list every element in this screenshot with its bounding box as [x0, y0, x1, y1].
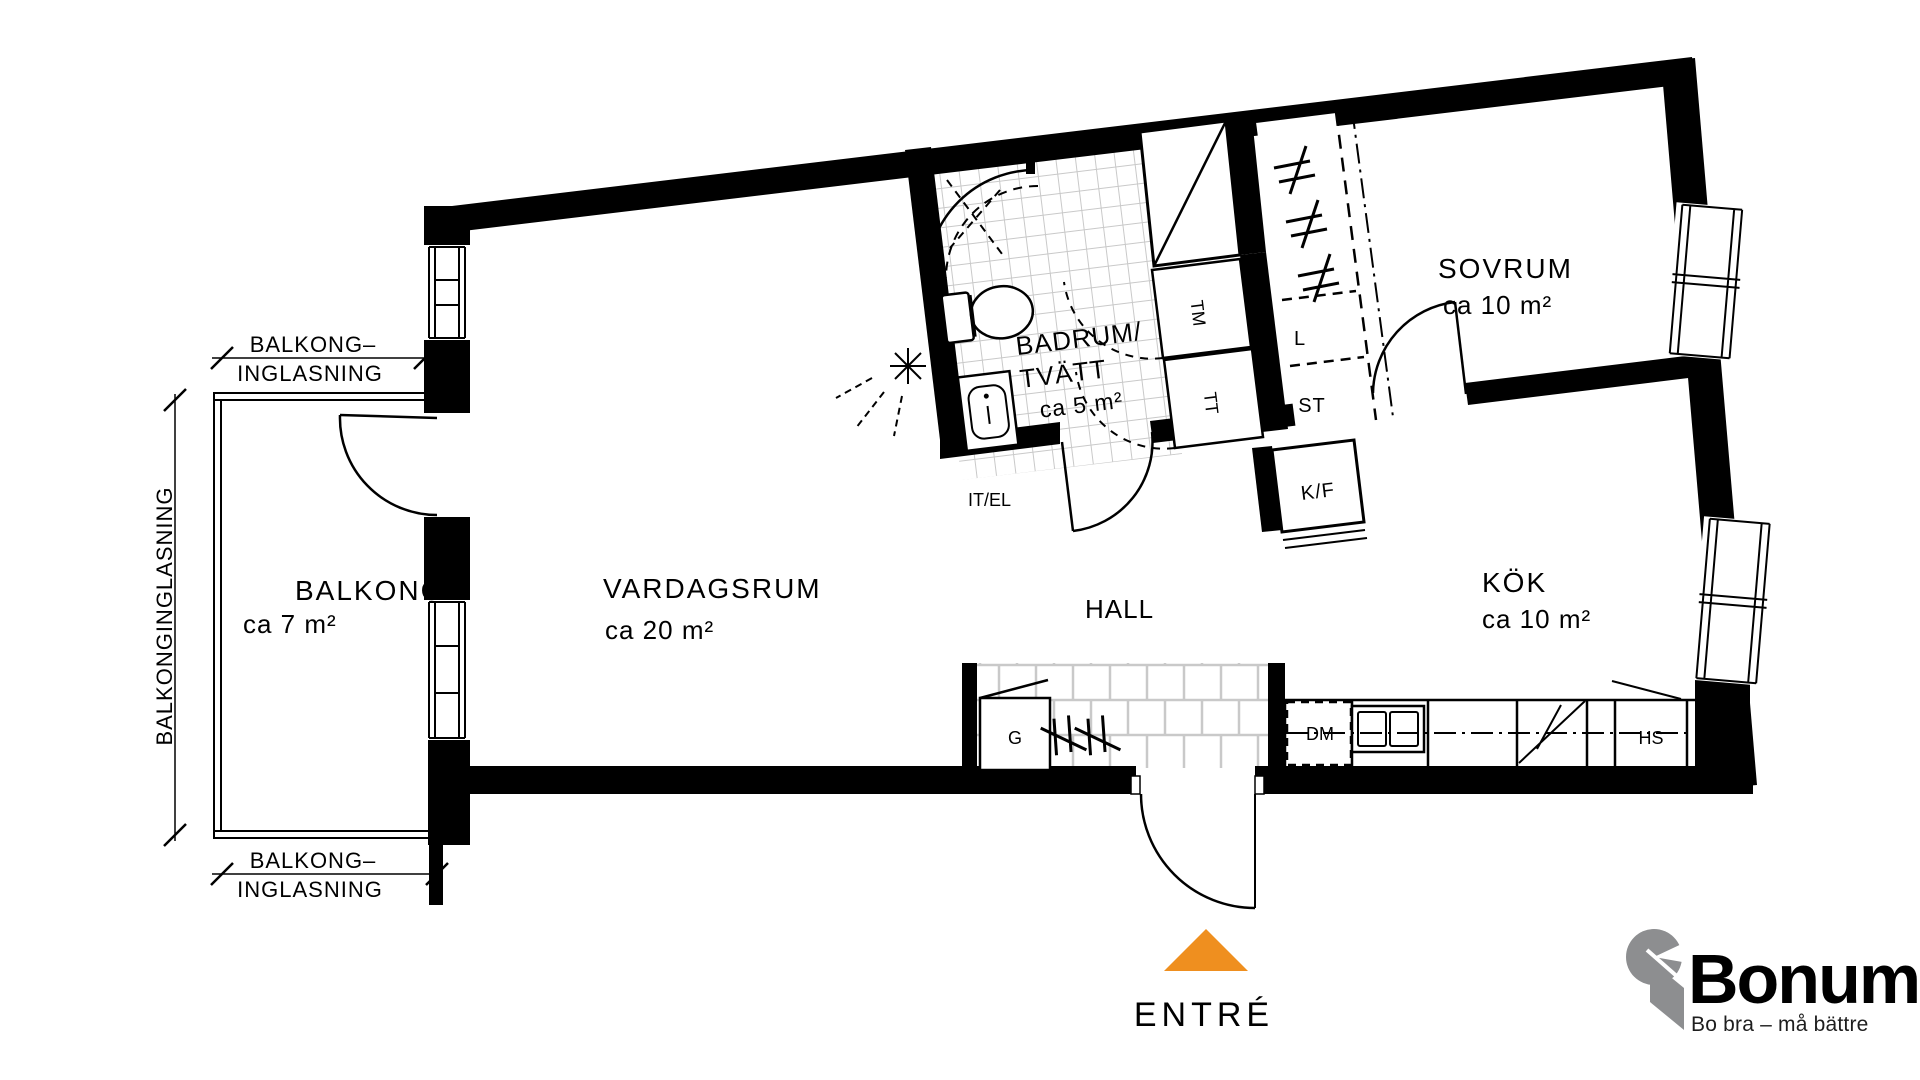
entrance-label: ENTRÉ [1134, 996, 1274, 1034]
label-hs: HS [1638, 728, 1663, 748]
closet-label-l: L [1294, 328, 1306, 350]
toilet-tank [941, 292, 974, 343]
living-room-window-1 [422, 245, 472, 340]
dim-label-top-1: BALKONG– [250, 332, 377, 357]
room-area-vardagsrum: ca 20 m² [605, 615, 714, 645]
shower-wall-tick [1026, 158, 1035, 174]
label-it-el: IT/EL [968, 490, 1011, 510]
kitchen-counter: DM HS [1285, 681, 1695, 766]
sovrum-south-wall [1465, 352, 1721, 405]
bonum-logo: Bonum Bo bra – må bättre [1626, 929, 1919, 1036]
dim-label-left: BALKONGINGLASNING [152, 486, 177, 745]
dim-label-bottom-2: INGLASNING [237, 877, 383, 902]
label-dm: DM [1306, 724, 1334, 744]
kitchen-window [1690, 516, 1776, 686]
washbasin [958, 371, 1019, 451]
bonum-tagline: Bo bra – må bättre [1691, 1013, 1869, 1036]
kitchen-divider-wall [1268, 663, 1285, 770]
fridge-freezer: K/F [1272, 440, 1367, 548]
left-balcony-dimension: BALKONGINGLASNING [152, 389, 186, 846]
room-label-balkong: BALKONG [295, 575, 444, 606]
room-label-sovrum: SOVRUM [1438, 253, 1573, 284]
hs-door-line [1612, 681, 1681, 699]
closet-label-kf: K/F [1300, 479, 1337, 505]
entrance-marker: ENTRÉ [1134, 929, 1274, 1034]
left-wall-pier-4 [428, 740, 470, 845]
bonum-wordmark: Bonum [1688, 940, 1919, 1018]
dim-label-top-2: INGLASNING [237, 361, 383, 386]
floor-drain-icon [836, 348, 926, 436]
entrance-door [1131, 776, 1264, 908]
bottom-wall-right [1255, 766, 1753, 794]
sink [1352, 706, 1424, 752]
bedroom-window [1664, 202, 1749, 361]
vestibule-divider-wall [962, 663, 977, 794]
room-area-kok: ca 10 m² [1482, 604, 1591, 634]
room-label-hall: HALL [1085, 594, 1154, 624]
label-tm: TM [1186, 299, 1209, 327]
floorplan-page: L ST K/F TM TT [0, 0, 1920, 1080]
floorplan-drawing: L ST K/F TM TT [0, 0, 1920, 1080]
balcony-door [340, 415, 437, 515]
ventilation-shaft [1140, 121, 1240, 266]
bottom-right-corner [1695, 680, 1750, 794]
kf-front-line-2 [1285, 538, 1367, 548]
closet-label-st: ST [1298, 395, 1326, 417]
room-label-vardagsrum: VARDAGSRUM [603, 573, 822, 604]
bottom-balcony-dimension: BALKONG– INGLASNING [211, 848, 448, 902]
room-label-kok: KÖK [1482, 567, 1547, 598]
room-area-balkong: ca 7 m² [243, 609, 337, 639]
entrance-arrow-icon [1164, 929, 1248, 971]
dim-label-bottom-1: BALKONG– [250, 848, 377, 873]
label-g: G [1008, 728, 1022, 748]
bonum-mark-icon [1626, 929, 1688, 1030]
room-area-sovrum: ca 10 m² [1443, 290, 1552, 320]
top-balcony-dimension: BALKONG– INGLASNING [211, 332, 436, 386]
living-room-window-2 [422, 600, 472, 740]
left-wall-pier-1 [424, 206, 470, 245]
label-tt: TT [1200, 391, 1223, 415]
